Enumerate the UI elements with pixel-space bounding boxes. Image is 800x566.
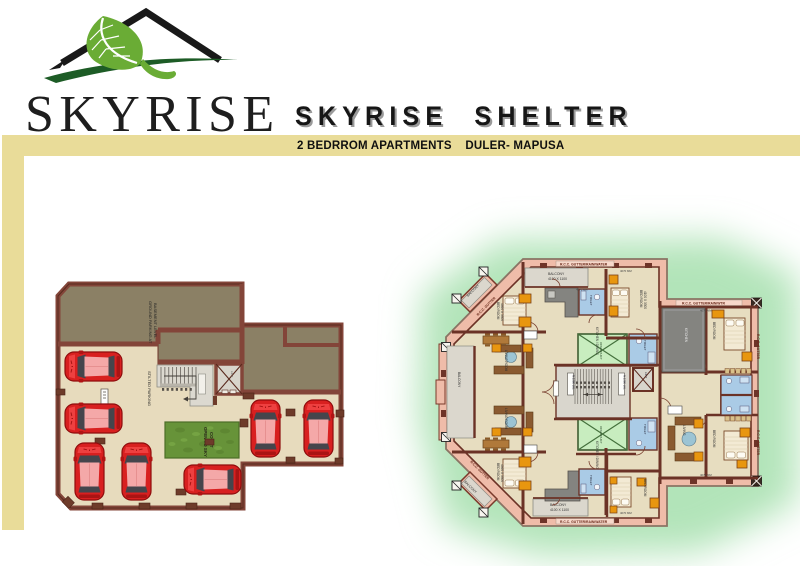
svg-text:BALCONY: BALCONY <box>457 372 461 388</box>
svg-text:BED ROOM: BED ROOM <box>712 430 716 448</box>
svg-text:TOILET: TOILET <box>643 424 647 435</box>
svg-text:BASEMENT LEVEL: BASEMENT LEVEL <box>153 303 158 339</box>
svg-text:TOILET: TOILET <box>643 340 647 351</box>
svg-text:LIVING: LIVING <box>682 425 686 436</box>
svg-text:LIVING ROOM: LIVING ROOM <box>504 350 508 372</box>
svg-text:N.1280 LVL: N.1280 LVL <box>572 375 576 390</box>
svg-text:GROUND PARKING AT: GROUND PARKING AT <box>148 301 153 344</box>
svg-text:4100 X 1100: 4100 X 1100 <box>548 277 567 281</box>
svg-text:R.C.C. GUTTER: R.C.C. GUTTER <box>756 430 760 456</box>
svg-text:4070 MM: 4070 MM <box>620 511 632 515</box>
svg-text:LIFT: LIFT <box>644 372 648 378</box>
svg-text:BED ROOM: BED ROOM <box>639 290 643 308</box>
svg-text:4070 MM: 4070 MM <box>620 269 632 273</box>
svg-text:4460 X 3300: 4460 X 3300 <box>500 464 504 482</box>
svg-text:4070 MM: 4070 MM <box>700 309 712 313</box>
svg-text:TOILET: TOILET <box>589 295 593 306</box>
svg-text:R.C.C. GUTTER/RAIN/WATER: R.C.C. GUTTER/RAIN/WATER <box>560 520 608 524</box>
svg-text:4460 X 3300: 4460 X 3300 <box>500 303 504 321</box>
svg-text:BED ROOM: BED ROOM <box>643 479 647 497</box>
svg-text:N.1280 LVL: N.1280 LVL <box>623 375 627 390</box>
svg-text:4100 X 3300: 4100 X 3300 <box>643 291 647 309</box>
svg-text:BALCONY: BALCONY <box>548 272 565 276</box>
svg-text:R.C.C. GUTTER/RAIN/WATER: R.C.C. GUTTER/RAIN/WATER <box>560 263 608 267</box>
svg-text:LIVING ROOM: LIVING ROOM <box>504 408 508 430</box>
svg-text:KITCHEN: KITCHEN <box>684 328 688 343</box>
svg-text:KITCHEN / DINING: KITCHEN / DINING <box>595 327 599 355</box>
svg-text:4100 X 1100: 4100 X 1100 <box>550 508 569 512</box>
svg-text:BED ROOM: BED ROOM <box>712 322 716 340</box>
svg-text:4070 MM: 4070 MM <box>700 473 712 477</box>
svg-text:4070 MM: 4070 MM <box>576 288 588 292</box>
svg-text:BED ROOM: BED ROOM <box>496 463 500 481</box>
svg-text:R.C.C. GUTTER/RAIN/WTR: R.C.C. GUTTER/RAIN/WTR <box>682 302 725 306</box>
svg-text:KITCHEN / DINING: KITCHEN / DINING <box>595 441 599 469</box>
svg-text:LIFT: LIFT <box>230 371 234 377</box>
svg-text:BED ROOM: BED ROOM <box>496 302 500 320</box>
svg-text:TOILET: TOILET <box>589 475 593 486</box>
svg-text:R.C.C. GUTTER: R.C.C. GUTTER <box>756 334 760 360</box>
svg-text:STILTED PARKING: STILTED PARKING <box>147 371 152 406</box>
